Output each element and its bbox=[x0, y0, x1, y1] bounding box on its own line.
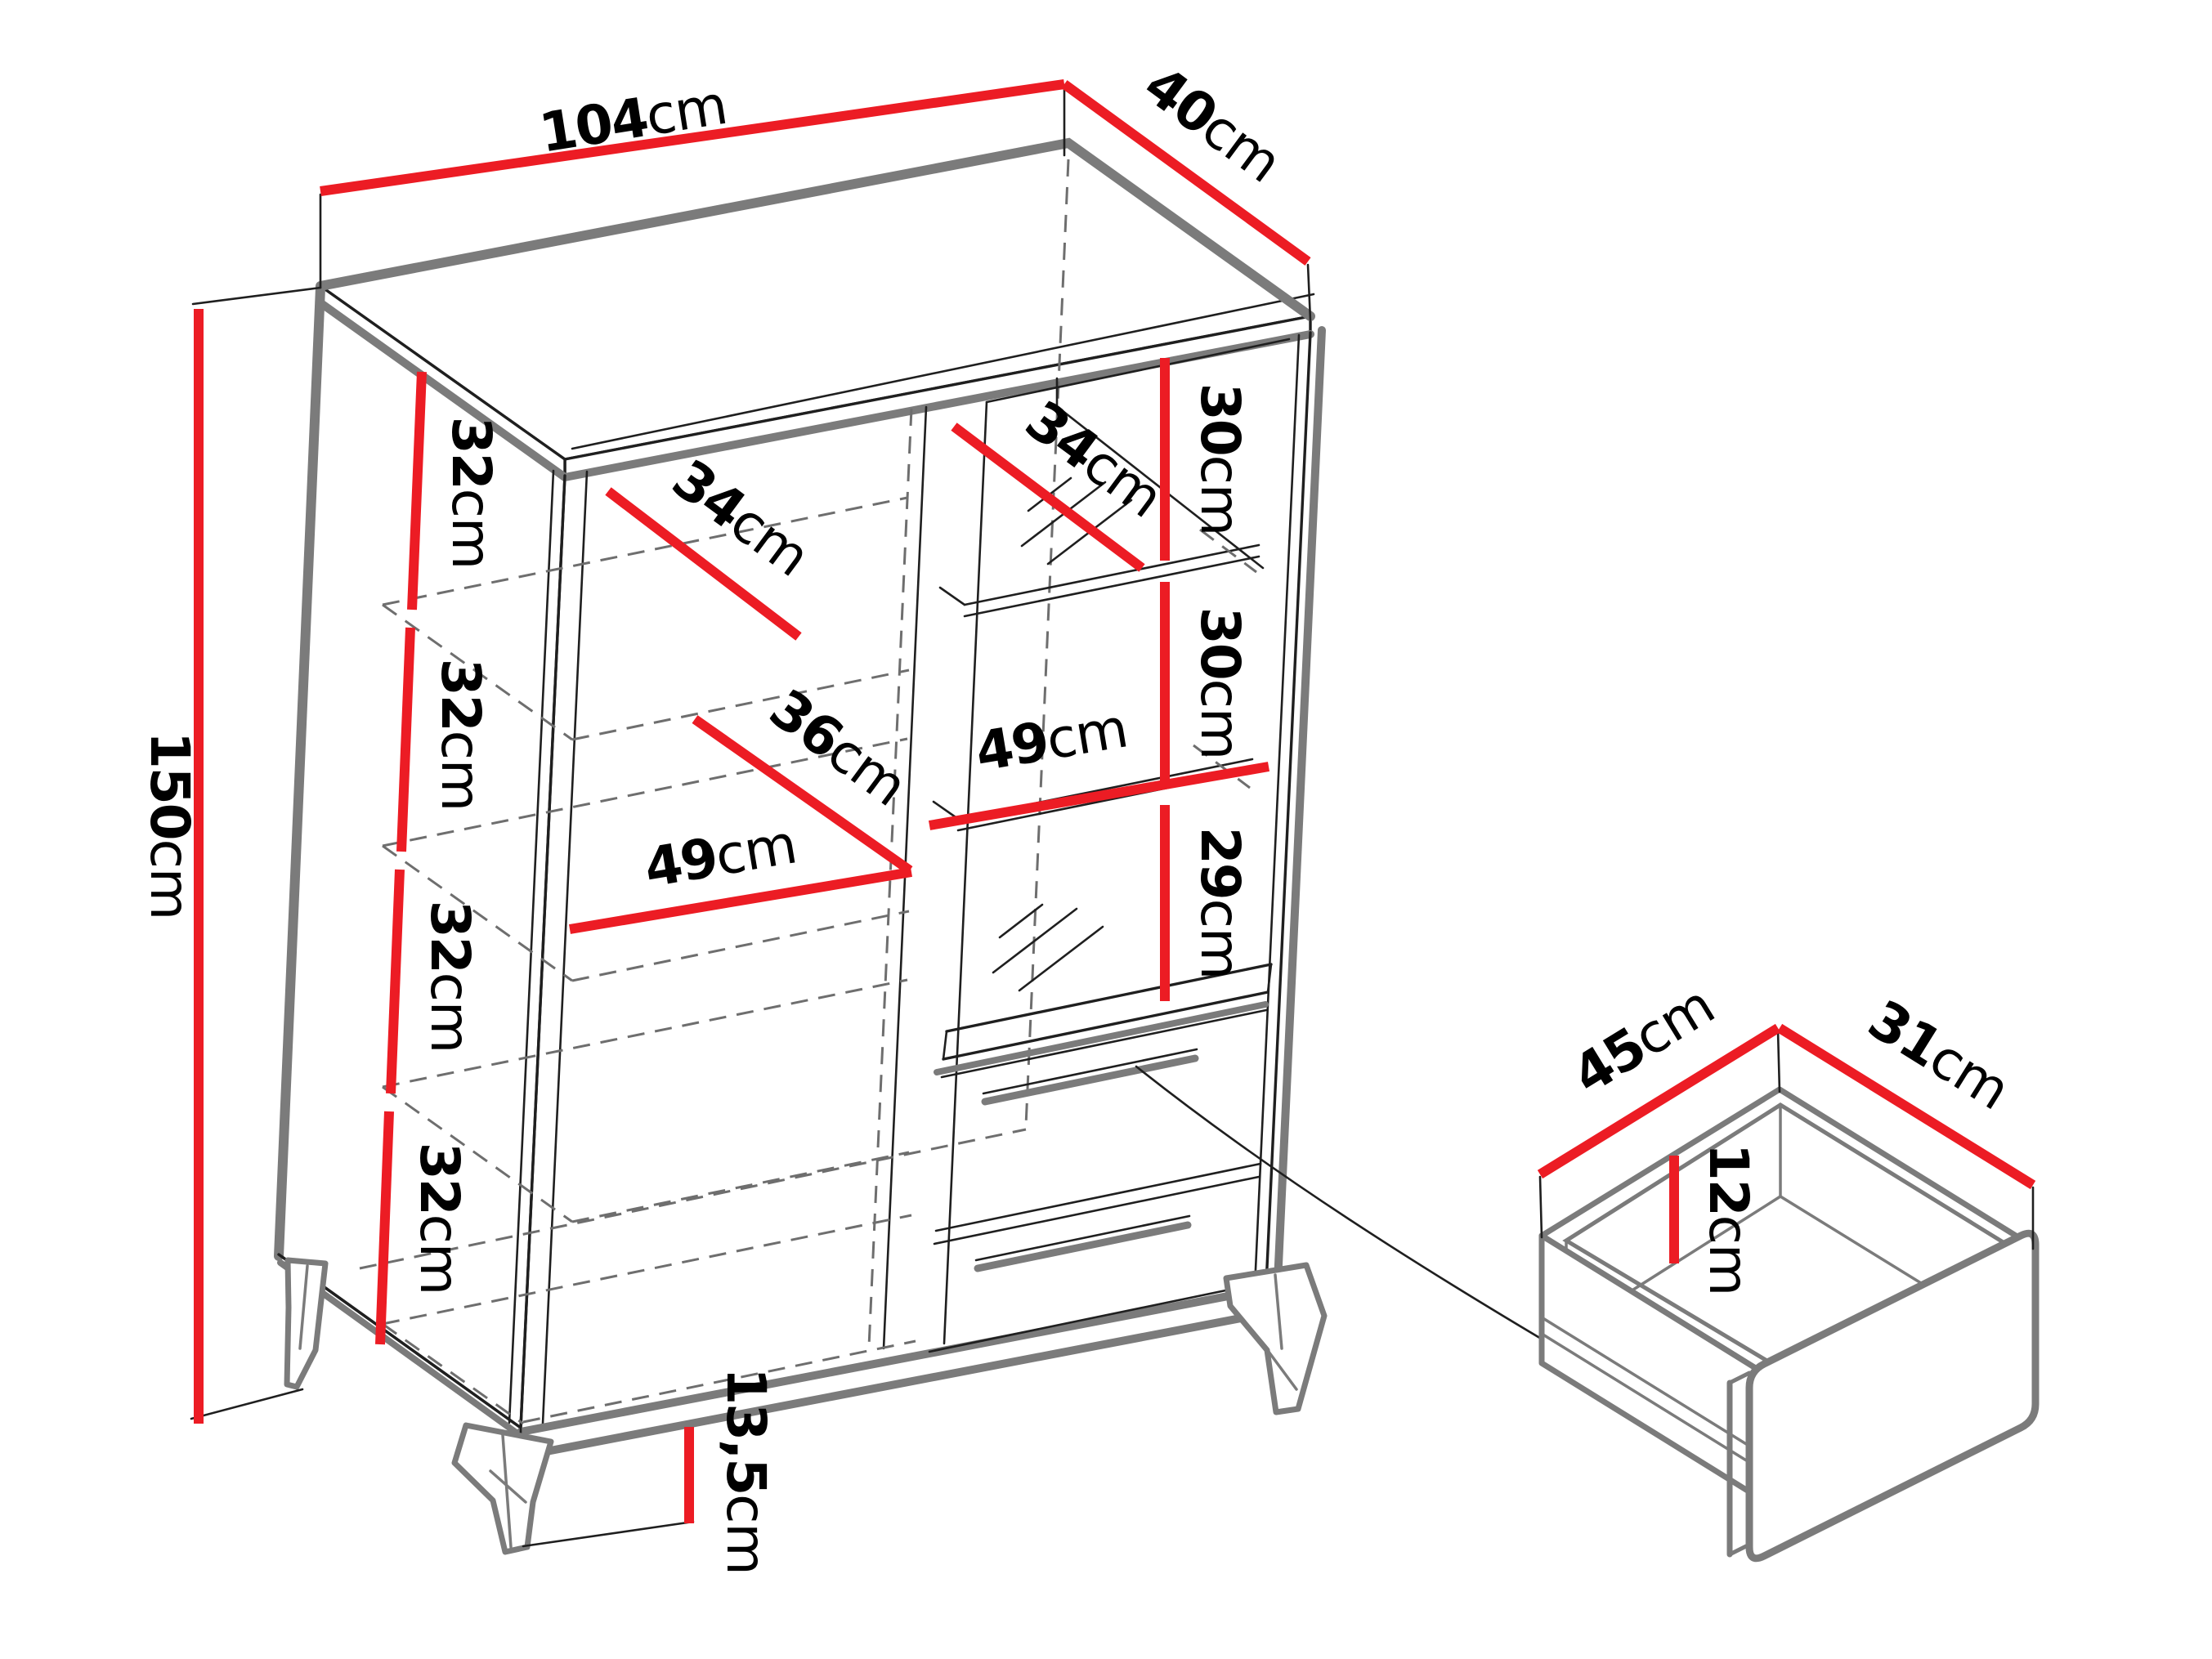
right-edge-shadow bbox=[1278, 330, 1322, 1282]
drawer2-top-edge bbox=[934, 1177, 1259, 1244]
glass-shine-lower bbox=[993, 905, 1103, 990]
dim-label-glass-gap2: 30cm bbox=[1189, 607, 1252, 759]
dim-label-shelf-width-49-right: 49cm bbox=[971, 696, 1132, 784]
drawer1-top-edge bbox=[942, 1010, 1266, 1077]
dim-label-drawer-depth: 45cm bbox=[1562, 973, 1725, 1107]
door-rail-lip bbox=[937, 1004, 1265, 1072]
dim-label-gap1: 32cm bbox=[440, 417, 503, 569]
dim-label-glass-shelf-depth-34: 34cm bbox=[1014, 389, 1175, 530]
drawer1-handle bbox=[985, 1058, 1195, 1102]
front-right-edge bbox=[1266, 333, 1310, 1285]
glass-shelf1-front bbox=[965, 545, 1259, 605]
diagram-page: 104cm 40cm 150cm 32cm 32cm 32cm 32cm 34c… bbox=[0, 0, 2212, 1659]
drawer2-handle bbox=[978, 1225, 1188, 1268]
door-bottom-rail-bottom bbox=[943, 992, 1268, 1059]
base-rail-2 bbox=[521, 1313, 1266, 1456]
dim-label-drawer-height: 12cm bbox=[1697, 1143, 1760, 1295]
cabinet-dimension-diagram: 104cm 40cm 150cm 32cm 32cm 32cm 32cm 34c… bbox=[0, 0, 2212, 1659]
drawer1-bottom-edge bbox=[936, 1164, 1260, 1231]
glass-door-stile bbox=[944, 402, 987, 1344]
dim-label-gap2: 32cm bbox=[429, 659, 492, 811]
dim-label-glass-gap1: 30cm bbox=[1189, 383, 1252, 535]
shelf3-front bbox=[572, 1152, 909, 1222]
front-right-edge-inner bbox=[1255, 335, 1299, 1287]
dim-label-leg-height: 13,5cm bbox=[714, 1367, 777, 1574]
door-rail-end-left bbox=[943, 1031, 947, 1059]
drawer2-bottom-edge bbox=[929, 1285, 1253, 1352]
drawer2-handle-line bbox=[976, 1216, 1189, 1260]
glass-shelf1-tick bbox=[940, 588, 965, 605]
dim-label-depth: 40cm bbox=[1133, 54, 1293, 195]
dim-label-gap3: 32cm bbox=[419, 901, 481, 1053]
dim-label-width: 104cm bbox=[535, 74, 732, 165]
dim-label-gap4: 32cm bbox=[408, 1143, 471, 1295]
base-rail-1 bbox=[521, 1289, 1266, 1432]
dim-label-shelf-width-49-left: 49cm bbox=[640, 812, 801, 900]
dim-label-shelf-depth-36: 36cm bbox=[759, 677, 919, 819]
dim-label-shelf-depth-34: 34cm bbox=[661, 448, 822, 589]
dim-label-drawer-width: 31cm bbox=[1857, 988, 2020, 1122]
dim-label-glass-gap3: 29cm bbox=[1189, 827, 1252, 979]
dim-label-height: 150cm bbox=[138, 731, 201, 919]
drawer-detail bbox=[1542, 1089, 2035, 1558]
